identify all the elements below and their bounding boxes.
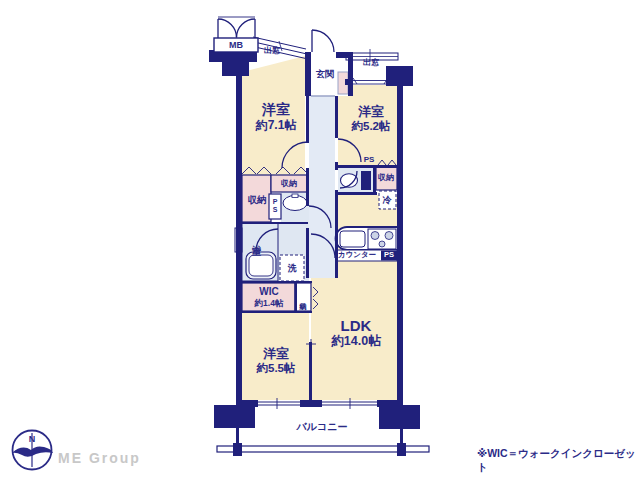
refrigerator-label: 冷 — [383, 196, 392, 205]
wic-note: ※WIC＝ウォークインクローゼット — [477, 447, 640, 475]
bay-window-left-label: 出窓 — [264, 47, 280, 55]
brand-logo-text: ME Group — [58, 450, 141, 466]
entrance-label: 玄関 — [316, 70, 334, 79]
closet-main-label: 収納 — [248, 195, 267, 205]
pipe-space-kitchen-label: PS — [384, 251, 394, 259]
balcony-structure — [217, 428, 429, 456]
kitchen-sink-icon — [340, 231, 365, 247]
window-room-5-2 — [349, 78, 392, 84]
wic-size: 約1.4帖 — [255, 299, 284, 308]
pipe-space-wash-label: PS — [272, 198, 279, 214]
room-5-5-size: 約5.5帖 — [257, 363, 296, 375]
closet-west3-label: 収納 — [300, 296, 307, 298]
balcony-label: バルコニー — [297, 422, 348, 432]
wic-name: WIC — [259, 287, 278, 297]
compass-north-label: N — [29, 435, 36, 444]
bathroom-label: 浴室 — [252, 238, 261, 240]
pillar-bottom-right — [379, 405, 420, 429]
room-7-1-name: 洋室 — [262, 102, 290, 116]
room-5-2-size: 約5.2帖 — [352, 121, 391, 133]
pipe-space-toilet-label: PS — [364, 156, 375, 164]
bay-window-left-diagonal — [253, 37, 308, 59]
entrance-door-arc — [312, 30, 334, 52]
room-5-5-name: 洋室 — [263, 347, 289, 360]
washer-label: 洗 — [288, 264, 297, 273]
room-5-2-name: 洋室 — [358, 105, 384, 118]
pillar-bottom-left — [214, 405, 255, 428]
closet-west2-label: 収納 — [378, 174, 394, 182]
floor-plan-page: MB 出窓 玄関 出窓 洋室 約7.1帖 洋室 約5.2帖 PS 収納 冷 収納… — [0, 0, 640, 480]
ldk-name: LDK — [341, 318, 372, 333]
meter-box-label: MB — [229, 41, 243, 50]
stove-icon — [368, 229, 396, 249]
hallway-floor — [309, 96, 335, 278]
bay-window-right-label: 出窓 — [363, 59, 379, 67]
kitchen-counter-label: カウンター — [338, 251, 376, 259]
closet-hall-label: 収納 — [281, 180, 297, 188]
ldk-size: 約14.0帖 — [331, 335, 380, 348]
room-7-1-size: 約7.1帖 — [256, 119, 297, 131]
